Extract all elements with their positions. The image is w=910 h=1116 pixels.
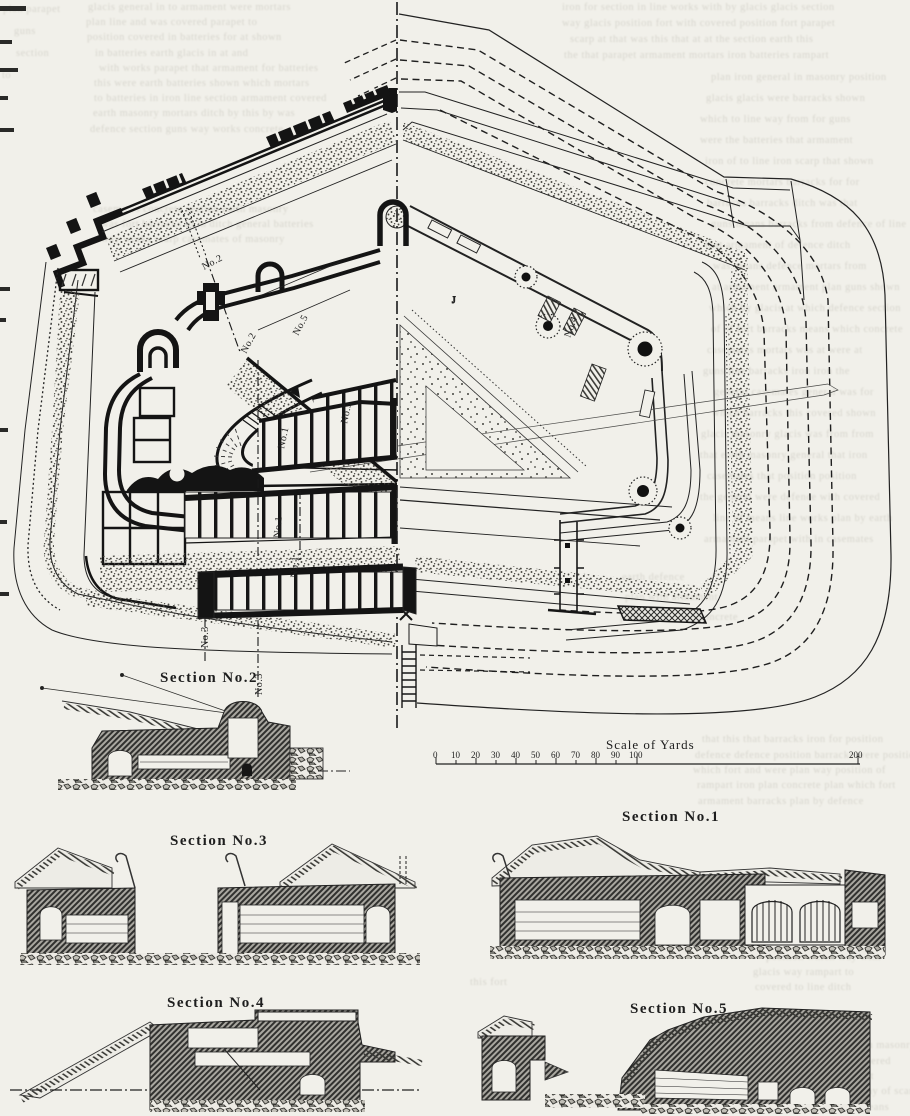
svg-text:No.1: No.1 — [272, 516, 285, 539]
svg-text:glacis general in to armament: glacis general in to armament were morta… — [88, 2, 291, 13]
svg-text:defence defence position barra: defence defence position barracks were p… — [695, 750, 910, 761]
svg-text:80: 80 — [591, 750, 601, 760]
svg-text:glacis way rampart to: glacis way rampart to — [753, 967, 854, 978]
svg-text:that earth masonry general tha: that earth masonry general that iron — [700, 450, 868, 461]
svg-text:the that parapet armament mort: the that parapet armament mortars iron b… — [564, 50, 829, 61]
svg-text:30: 30 — [491, 750, 501, 760]
svg-text:earth masonry mortars ditch by: earth masonry mortars ditch by this by w… — [93, 108, 295, 119]
svg-text:200: 200 — [849, 750, 863, 760]
svg-text:rampart iron plan concrete pla: rampart iron plan concrete plan which fo… — [697, 780, 896, 791]
svg-text:iron for section in line works: iron for section in line works with by g… — [562, 2, 835, 13]
svg-text:70: 70 — [571, 750, 581, 760]
svg-text:this fort: this fort — [470, 977, 507, 988]
svg-text:to batteries in iron line sect: to batteries in iron line section armame… — [94, 93, 327, 104]
svg-text:scarp at that was this that at: scarp at that was this that at at the se… — [570, 34, 813, 45]
svg-text:casemates that position positi: casemates that position position — [707, 471, 857, 482]
svg-text:defence section guns way works: defence section guns way works concrete — [90, 124, 284, 135]
svg-text:with works parapet that armame: with works parapet that armament for bat… — [99, 63, 319, 74]
svg-text:which to line way from for gun: which to line way from for guns — [700, 114, 851, 125]
svg-text:the general were defence with: the general were defence with covered — [700, 492, 881, 503]
svg-text:J: J — [452, 295, 456, 305]
svg-text:plan line and was covered para: plan line and was covered parapet to — [86, 17, 257, 28]
svg-text:way glacis position fort with: way glacis position fort with covered po… — [562, 18, 835, 29]
svg-text:Section No.4: Section No.4 — [167, 995, 265, 1011]
svg-text:this were earth batteries show: this were earth batteries shown which mo… — [94, 78, 310, 89]
svg-text:guns: guns — [14, 26, 36, 37]
svg-text:plan iron general in masonry p: plan iron general in masonry position — [711, 72, 887, 83]
svg-text:20: 20 — [471, 750, 481, 760]
svg-text:in batteries earth glacis in a: in batteries earth glacis in at and — [95, 48, 249, 59]
svg-text:armament barracks plan by defe: armament barracks plan by defence — [698, 796, 864, 807]
svg-text:guns means barracks from defen: guns means barracks from defence of line — [711, 219, 907, 230]
svg-text:Section No.2: Section No.2 — [160, 670, 258, 686]
svg-text:0: 0 — [433, 750, 438, 760]
svg-text:No.3: No.3 — [200, 626, 211, 648]
svg-text:covered to line ditch: covered to line ditch — [755, 982, 852, 993]
svg-text:Section No.5: Section No.5 — [630, 1001, 728, 1017]
svg-text:which fort and were plan way p: which fort and were plan way position of — [693, 765, 886, 776]
svg-text:10: 10 — [451, 750, 461, 760]
svg-text:60: 60 — [551, 750, 561, 760]
svg-text:armament parapet with in casem: armament parapet with in casemates — [704, 534, 874, 545]
svg-text:that this that barracks iron f: that this that barracks iron for positio… — [702, 734, 884, 745]
svg-text:were the batteries that armame: were the batteries that armament — [700, 135, 853, 146]
svg-text:section: section — [16, 48, 49, 59]
svg-text:Section No.1: Section No.1 — [622, 809, 720, 825]
svg-text:iron of to line iron scarp tha: iron of to line iron scarp that shown — [705, 156, 874, 167]
svg-text:No.1: No.1 — [289, 556, 302, 579]
svg-text:position covered in batteries: position covered in batteries for at sho… — [87, 32, 282, 43]
svg-text:Section No.3: Section No.3 — [170, 833, 268, 849]
svg-text:90: 90 — [611, 750, 621, 760]
svg-text:100: 100 — [629, 750, 643, 760]
svg-text:40: 40 — [511, 750, 521, 760]
svg-text:glacis glacis were barracks sh: glacis glacis were barracks shown — [706, 93, 866, 104]
svg-text:50: 50 — [531, 750, 541, 760]
